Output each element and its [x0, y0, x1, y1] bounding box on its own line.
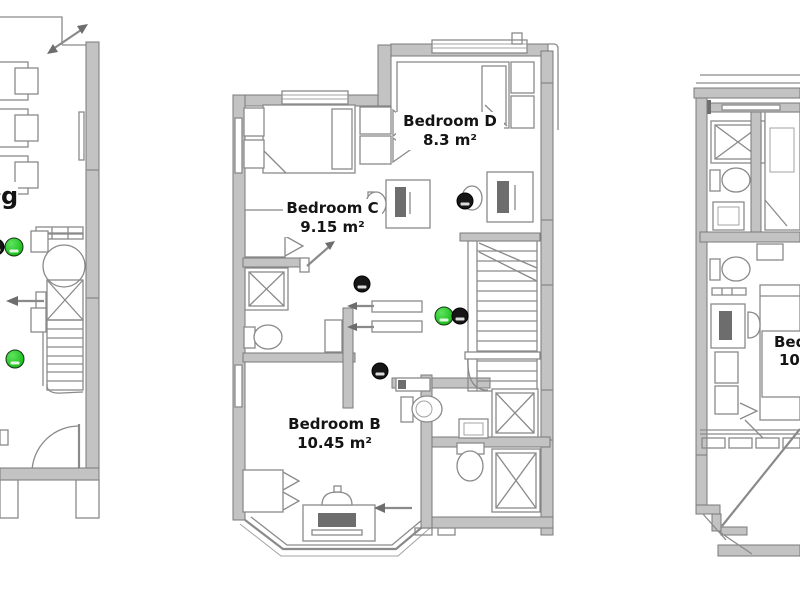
sensor-dot-mark [10, 250, 19, 253]
sensor-dot-black[interactable] [372, 363, 389, 380]
left-plan-partial-label: g [1, 182, 18, 210]
room-area: 9.15 m² [285, 218, 380, 237]
room-area: 10.45 m² [287, 434, 382, 453]
room-label-bedroom-c: Bedroom C 9.15 m² [283, 199, 382, 237]
left-plan-fragment [0, 17, 99, 518]
sensor-dot-mark [0, 249, 1, 252]
sensor-dot-black[interactable] [452, 308, 469, 325]
right-plan-partial-label: Bed 10 [774, 333, 800, 369]
room-area: 8.3 m² [398, 131, 502, 150]
room-name: Bedroom B [287, 415, 382, 434]
sensor-dot-black[interactable] [354, 276, 371, 293]
floor-plan-canvas: Bedroom D 8.3 m² Bedroom C 9.15 m² Bedro… [0, 0, 800, 600]
sensor-dot-green[interactable] [6, 350, 25, 369]
sensor-dot-mark [11, 362, 20, 365]
sensor-dot-mark [358, 286, 367, 289]
room-name: Bedroom D [398, 112, 502, 131]
sensor-dot-mark [456, 318, 465, 321]
right-label-line1: Bed [774, 333, 800, 351]
sensor-dot-mark [376, 373, 385, 376]
sensor-dot-black[interactable] [457, 193, 474, 210]
room-name: Bedroom C [285, 199, 380, 218]
room-label-bedroom-b: Bedroom B 10.45 m² [285, 415, 384, 453]
right-plan-fragment [694, 75, 800, 556]
sensor-dot-green[interactable] [5, 238, 24, 257]
sensor-dot-mark [461, 203, 470, 206]
right-label-line2: 10 [774, 351, 800, 369]
floor-plan-linework [0, 0, 800, 600]
room-label-bedroom-d: Bedroom D 8.3 m² [396, 112, 504, 150]
sensor-dot-mark [440, 319, 449, 322]
